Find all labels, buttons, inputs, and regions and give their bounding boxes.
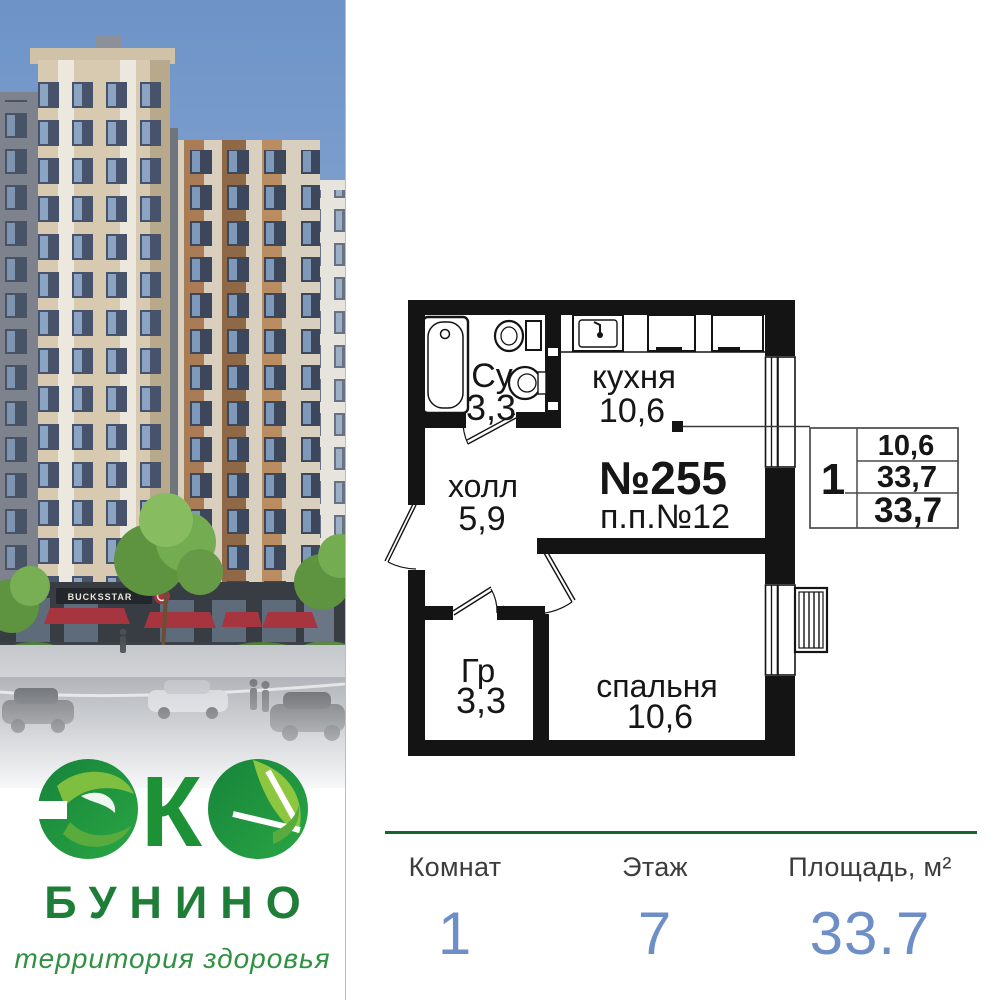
leader-dot <box>672 421 683 432</box>
bathroom-area: 3,3 <box>466 387 516 428</box>
ac-basket <box>795 588 827 652</box>
floor-plan: Су 3,3 кухня 10,6 холл 5,9 Гр 3,3 спальн… <box>0 0 1000 1000</box>
window-kitchen <box>766 357 796 467</box>
stat-rooms-label: Комнат <box>409 852 502 883</box>
toilet <box>495 321 541 351</box>
table-rooms-count: 1 <box>821 455 845 504</box>
door-bedroom <box>503 544 575 614</box>
kitchen-area: 10,6 <box>599 392 665 430</box>
kitchen-label: кухня <box>592 358 676 395</box>
stat-area: Площадь, м² 33.7 <box>788 852 951 968</box>
stat-floor-label: Этаж <box>622 852 688 883</box>
door-wardrobe <box>453 587 497 615</box>
stat-rooms-value: 1 <box>409 899 502 968</box>
stat-floor: Этаж 7 <box>622 852 688 968</box>
stat-area-label: Площадь, м² <box>788 852 951 883</box>
bedroom-area: 10,6 <box>627 698 693 736</box>
window-bedroom <box>766 585 796 675</box>
table-full-area: 33,7 <box>874 491 942 530</box>
apartment-number: №255 <box>599 452 727 504</box>
hall-label: холл <box>448 468 518 504</box>
project-number: п.п.№12 <box>600 498 730 536</box>
kitchen-fixtures <box>561 315 765 352</box>
wardrobe-area: 3,3 <box>456 680 506 721</box>
hall-area: 5,9 <box>458 500 505 538</box>
table-living-area: 10,6 <box>878 430 934 462</box>
bathtub <box>423 317 468 413</box>
table-total-area: 33,7 <box>877 459 937 494</box>
stats-divider-line <box>385 831 977 834</box>
stat-area-value: 33.7 <box>788 899 951 968</box>
door-entrance <box>385 504 425 570</box>
stat-floor-value: 7 <box>622 899 688 968</box>
stat-rooms: Комнат 1 <box>409 852 502 968</box>
